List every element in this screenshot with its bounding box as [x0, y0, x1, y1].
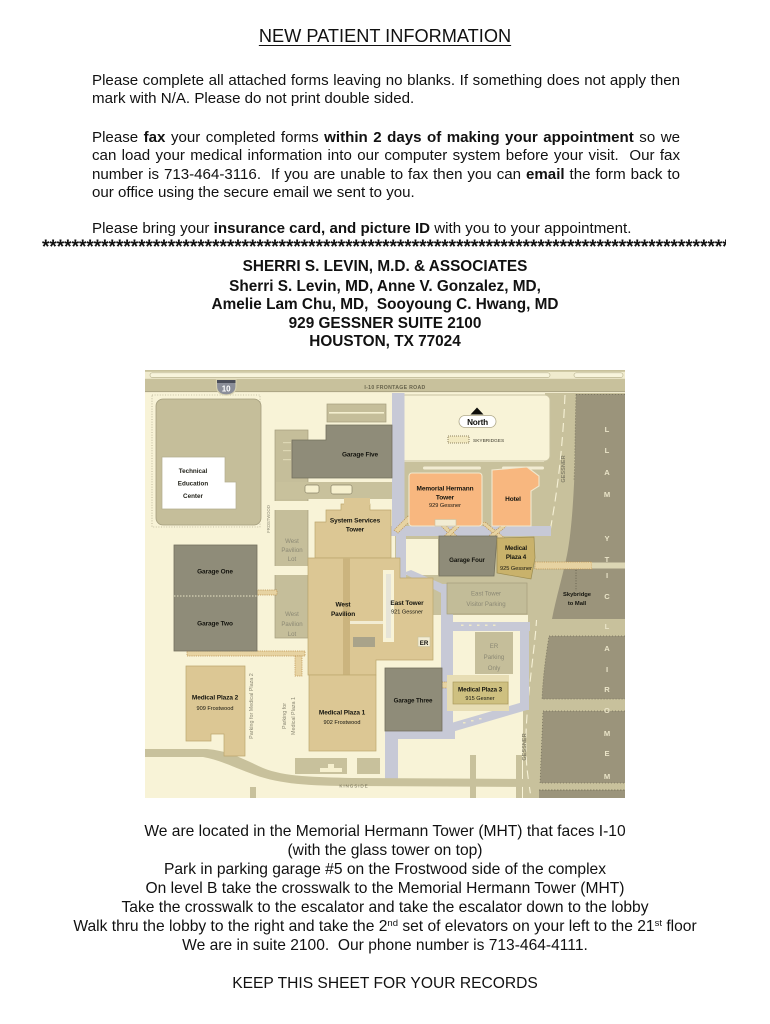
- svg-text:ER: ER: [420, 640, 429, 647]
- svg-text:GESSNER: GESSNER: [561, 455, 567, 482]
- svg-text:921 Gessner: 921 Gessner: [391, 610, 423, 616]
- svg-text:Skybridge: Skybridge: [563, 592, 592, 598]
- svg-text:Lot: Lot: [288, 556, 297, 563]
- svg-text:Garage One: Garage One: [197, 569, 233, 576]
- svg-text:Medical: Medical: [505, 545, 527, 552]
- svg-text:Plaza 4: Plaza 4: [506, 554, 527, 561]
- svg-text:Garage Four: Garage Four: [449, 557, 485, 564]
- svg-text:10: 10: [222, 385, 231, 394]
- svg-text:Education: Education: [178, 481, 209, 488]
- svg-text:Hotel: Hotel: [505, 496, 521, 503]
- svg-text:Tower: Tower: [346, 527, 365, 534]
- svg-text:929 Gessner: 929 Gessner: [429, 503, 461, 509]
- svg-text:I: I: [606, 665, 608, 674]
- svg-text:SKYBRIDGES: SKYBRIDGES: [473, 438, 504, 444]
- svg-text:West: West: [285, 538, 299, 545]
- svg-text:L: L: [605, 425, 610, 434]
- svg-text:Medical Plaza 1: Medical Plaza 1: [319, 710, 366, 717]
- svg-text:West: West: [335, 602, 351, 609]
- svg-text:West: West: [285, 611, 299, 618]
- svg-text:M: M: [604, 490, 610, 499]
- svg-text:GESSNER: GESSNER: [522, 733, 528, 760]
- svg-text:FROSTWOOD: FROSTWOOD: [266, 505, 271, 533]
- svg-text:Pavilion: Pavilion: [281, 547, 302, 554]
- svg-text:Medical Plaza 3: Medical Plaza 3: [458, 687, 503, 694]
- svg-text:O: O: [604, 706, 610, 715]
- svg-text:M: M: [604, 772, 610, 781]
- svg-text:Parking: Parking: [484, 654, 505, 661]
- svg-text:East Tower: East Tower: [390, 600, 424, 607]
- svg-text:Only: Only: [488, 665, 501, 672]
- svg-text:Pavilion: Pavilion: [331, 611, 355, 618]
- svg-text:Medical Plaza 1: Medical Plaza 1: [291, 697, 297, 735]
- svg-text:Tower: Tower: [436, 495, 455, 502]
- svg-text:System Services: System Services: [330, 518, 381, 525]
- svg-text:R: R: [604, 685, 610, 694]
- svg-text:Lot: Lot: [288, 631, 297, 638]
- svg-text:Visitor Parking: Visitor Parking: [466, 601, 505, 608]
- svg-text:Center: Center: [183, 493, 203, 500]
- svg-text:Medical Plaza 2: Medical Plaza 2: [192, 695, 239, 702]
- svg-text:L: L: [605, 622, 610, 631]
- svg-text:East Tower: East Tower: [471, 591, 501, 598]
- svg-text:Garage Three: Garage Three: [394, 698, 433, 705]
- svg-text:902 Frostwood: 902 Frostwood: [323, 720, 360, 726]
- svg-text:North: North: [467, 418, 488, 427]
- svg-text:Parking for Medical Plaza 2: Parking for Medical Plaza 2: [249, 673, 255, 739]
- svg-text:925 Gessner: 925 Gessner: [500, 566, 532, 572]
- svg-text:Garage Five: Garage Five: [342, 452, 379, 459]
- svg-text:Garage Two: Garage Two: [197, 621, 233, 628]
- svg-text:E: E: [604, 749, 609, 758]
- svg-text:Parking for: Parking for: [282, 703, 288, 729]
- svg-text:Pavilion: Pavilion: [281, 621, 302, 628]
- svg-text:915 Gesner: 915 Gesner: [465, 696, 494, 702]
- svg-text:KINGSIDE: KINGSIDE: [339, 784, 368, 789]
- svg-text:M: M: [604, 729, 610, 738]
- svg-text:I: I: [606, 571, 608, 580]
- svg-text:to Mall: to Mall: [568, 601, 587, 607]
- svg-text:C: C: [604, 592, 610, 601]
- svg-text:A: A: [604, 468, 610, 477]
- svg-text:909 Frostwood: 909 Frostwood: [196, 706, 233, 712]
- svg-text:I-10 FRONTAGE ROAD: I-10 FRONTAGE ROAD: [364, 385, 425, 391]
- svg-text:L: L: [605, 446, 610, 455]
- svg-text:Technical: Technical: [179, 468, 208, 475]
- svg-text:A: A: [604, 644, 610, 653]
- svg-text:Memorial Hermann: Memorial Hermann: [417, 486, 474, 493]
- svg-text:Y: Y: [604, 534, 609, 543]
- svg-text:ER: ER: [490, 643, 499, 650]
